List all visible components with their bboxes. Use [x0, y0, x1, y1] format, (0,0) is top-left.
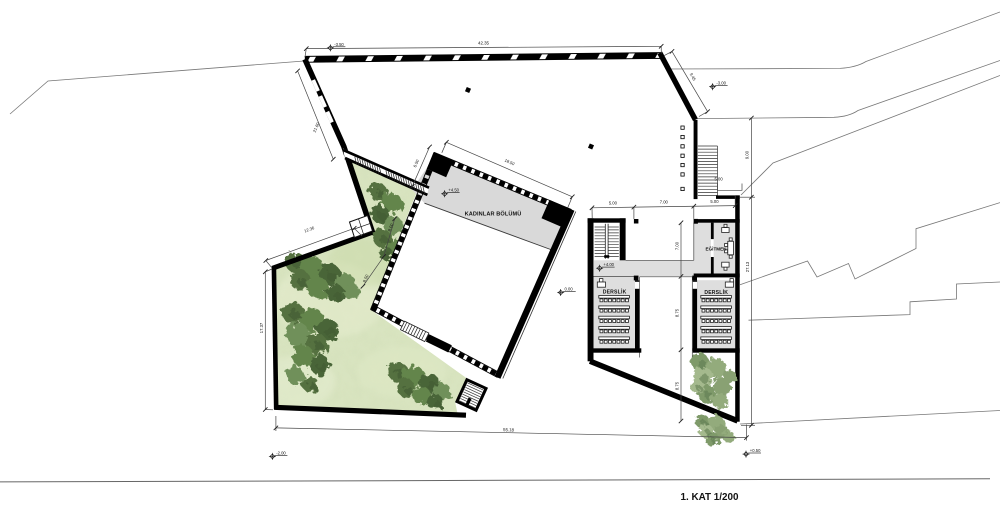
svg-text:55.18: 55.18 [503, 427, 515, 432]
svg-text:9.00: 9.00 [744, 150, 749, 159]
svg-text:-3.00: -3.00 [716, 81, 726, 86]
svg-text:5.00: 5.00 [609, 200, 618, 205]
svg-text:0.00: 0.00 [565, 286, 574, 291]
svg-text:42.35: 42.35 [478, 41, 490, 46]
svg-text:DERSLİK: DERSLİK [704, 289, 728, 296]
svg-text:1. KAT 1/200: 1. KAT 1/200 [681, 492, 740, 503]
svg-text:27.13: 27.13 [745, 261, 750, 272]
svg-text:17.37: 17.37 [259, 322, 264, 333]
svg-text:8.75: 8.75 [675, 308, 680, 317]
svg-text:EĞİTMEN: EĞİTMEN [706, 245, 728, 252]
svg-text:8.75: 8.75 [675, 381, 680, 390]
svg-text:-2.00: -2.00 [276, 450, 286, 455]
svg-text:+4.50: +4.50 [448, 188, 459, 193]
svg-text:DERSLİK: DERSLİK [603, 288, 627, 295]
svg-text:-3.50: -3.50 [334, 42, 344, 47]
svg-text:7.00: 7.00 [660, 200, 669, 205]
svg-text:7.00: 7.00 [675, 241, 680, 250]
svg-text:KADINLAR BÖLÜMÜ: KADINLAR BÖLÜMÜ [465, 210, 522, 217]
svg-text:5.00: 5.00 [710, 199, 719, 204]
svg-text:+0.50: +0.50 [750, 448, 761, 453]
svg-text:5.00: 5.00 [715, 177, 724, 182]
svg-text:+4.00: +4.00 [603, 262, 614, 267]
